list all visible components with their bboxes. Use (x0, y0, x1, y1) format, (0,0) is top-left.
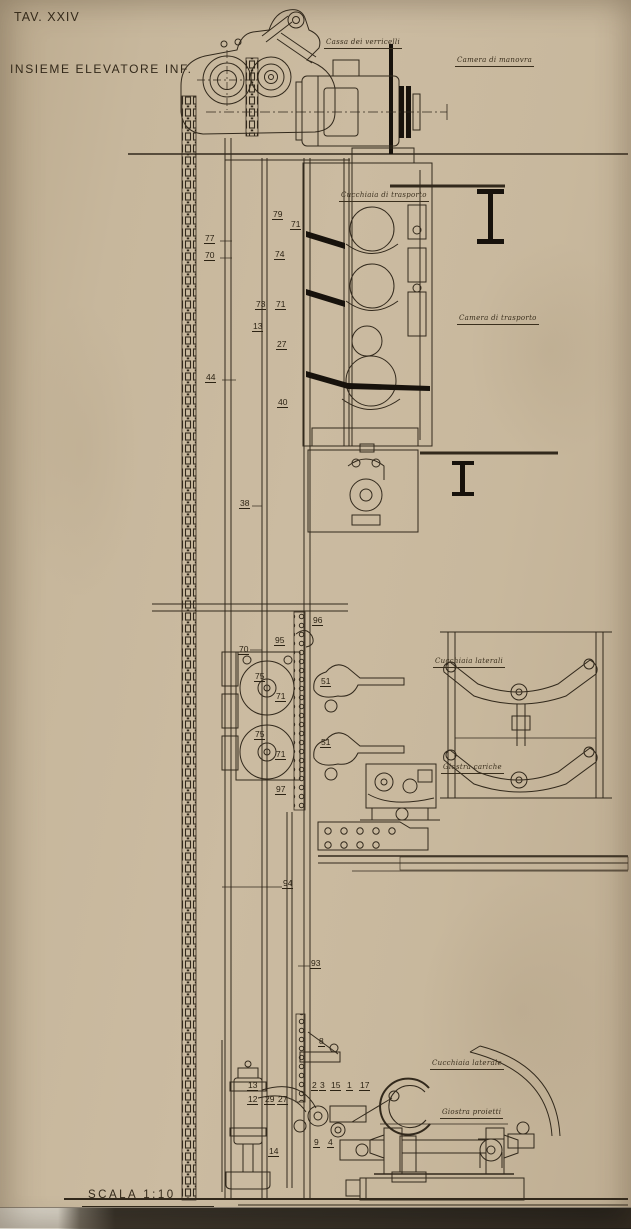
lower-pulley-box-drawing (308, 444, 418, 532)
charge-carousel-drawing (360, 764, 440, 820)
part-number-27: 27 (277, 1095, 288, 1105)
part-number-27: 27 (276, 340, 287, 350)
label-giostra-proietti: Giostra proietti (440, 1109, 503, 1119)
label-giostra-cariche: Giostra cariche (441, 764, 504, 774)
part-number-44: 44 (205, 373, 216, 383)
part-number-97: 97 (275, 785, 286, 795)
label-cassa-verricelli: Cassa dei verricelli (324, 39, 402, 49)
part-number-71: 71 (275, 750, 286, 760)
label-cucchiaia-laterali: Cucchiaia laterali (433, 658, 505, 668)
part-number-1: 1 (346, 1081, 353, 1091)
part-number-95: 95 (274, 636, 285, 646)
part-number-17: 17 (359, 1081, 370, 1091)
projectile-carousel-drawing (346, 1124, 524, 1200)
drawing-sheet: TAV. XXIV INSIEME ELEVATORE INF. SCALA 1… (0, 0, 631, 1228)
part-number-94: 94 (282, 879, 293, 889)
part-number-14: 14 (268, 1147, 279, 1157)
part-number-2: 2 (311, 1081, 318, 1091)
part-number-70: 70 (238, 645, 249, 655)
frame-lines (128, 44, 628, 611)
label-cucchiaia-laterale: Cucchiaia laterale (430, 1060, 504, 1070)
part-number-96: 96 (312, 616, 323, 626)
part-number-73: 73 (255, 300, 266, 310)
drawing-title: INSIEME ELEVATORE INF. (10, 62, 193, 76)
part-number-51: 51 (320, 677, 331, 687)
part-number-13: 13 (252, 322, 263, 332)
part-number-40: 40 (277, 398, 288, 408)
label-cucchiaia-trasporto: Cucchiaia di trasporto (339, 192, 429, 202)
bolt-plate-and-rails-drawing (318, 822, 628, 871)
label-camera-trasporto: Camera di trasporto (457, 315, 539, 325)
part-number-9: 9 (313, 1138, 320, 1148)
technical-linework (0, 0, 631, 1228)
part-number-93: 93 (310, 959, 321, 969)
part-number-12: 12 (247, 1095, 258, 1105)
part-number-29: 29 (264, 1095, 275, 1105)
plate-number: TAV. XXIV (14, 10, 80, 24)
part-number-74: 74 (274, 250, 285, 260)
part-number-71: 71 (275, 300, 286, 310)
part-number-77: 77 (204, 234, 215, 244)
part-number-75: 75 (254, 730, 265, 740)
part-number-13: 13 (247, 1081, 258, 1091)
part-number-75: 75 (254, 672, 265, 682)
part-number-70: 70 (204, 251, 215, 261)
part-number-71: 71 (275, 692, 286, 702)
paper-bottom-edge (0, 1207, 631, 1229)
part-number-8: 8 (318, 1037, 325, 1047)
part-number-51: 51 (320, 738, 331, 748)
part-number-3: 3 (319, 1081, 326, 1091)
label-camera-manovra: Camera di manovra (455, 57, 534, 67)
scale-label: SCALA 1:10 (88, 1189, 176, 1201)
part-number-4: 4 (327, 1138, 334, 1148)
part-number-38: 38 (239, 499, 250, 509)
part-number-79: 79 (272, 210, 283, 220)
part-number-71: 71 (290, 220, 301, 230)
part-number-15: 15 (330, 1081, 341, 1091)
